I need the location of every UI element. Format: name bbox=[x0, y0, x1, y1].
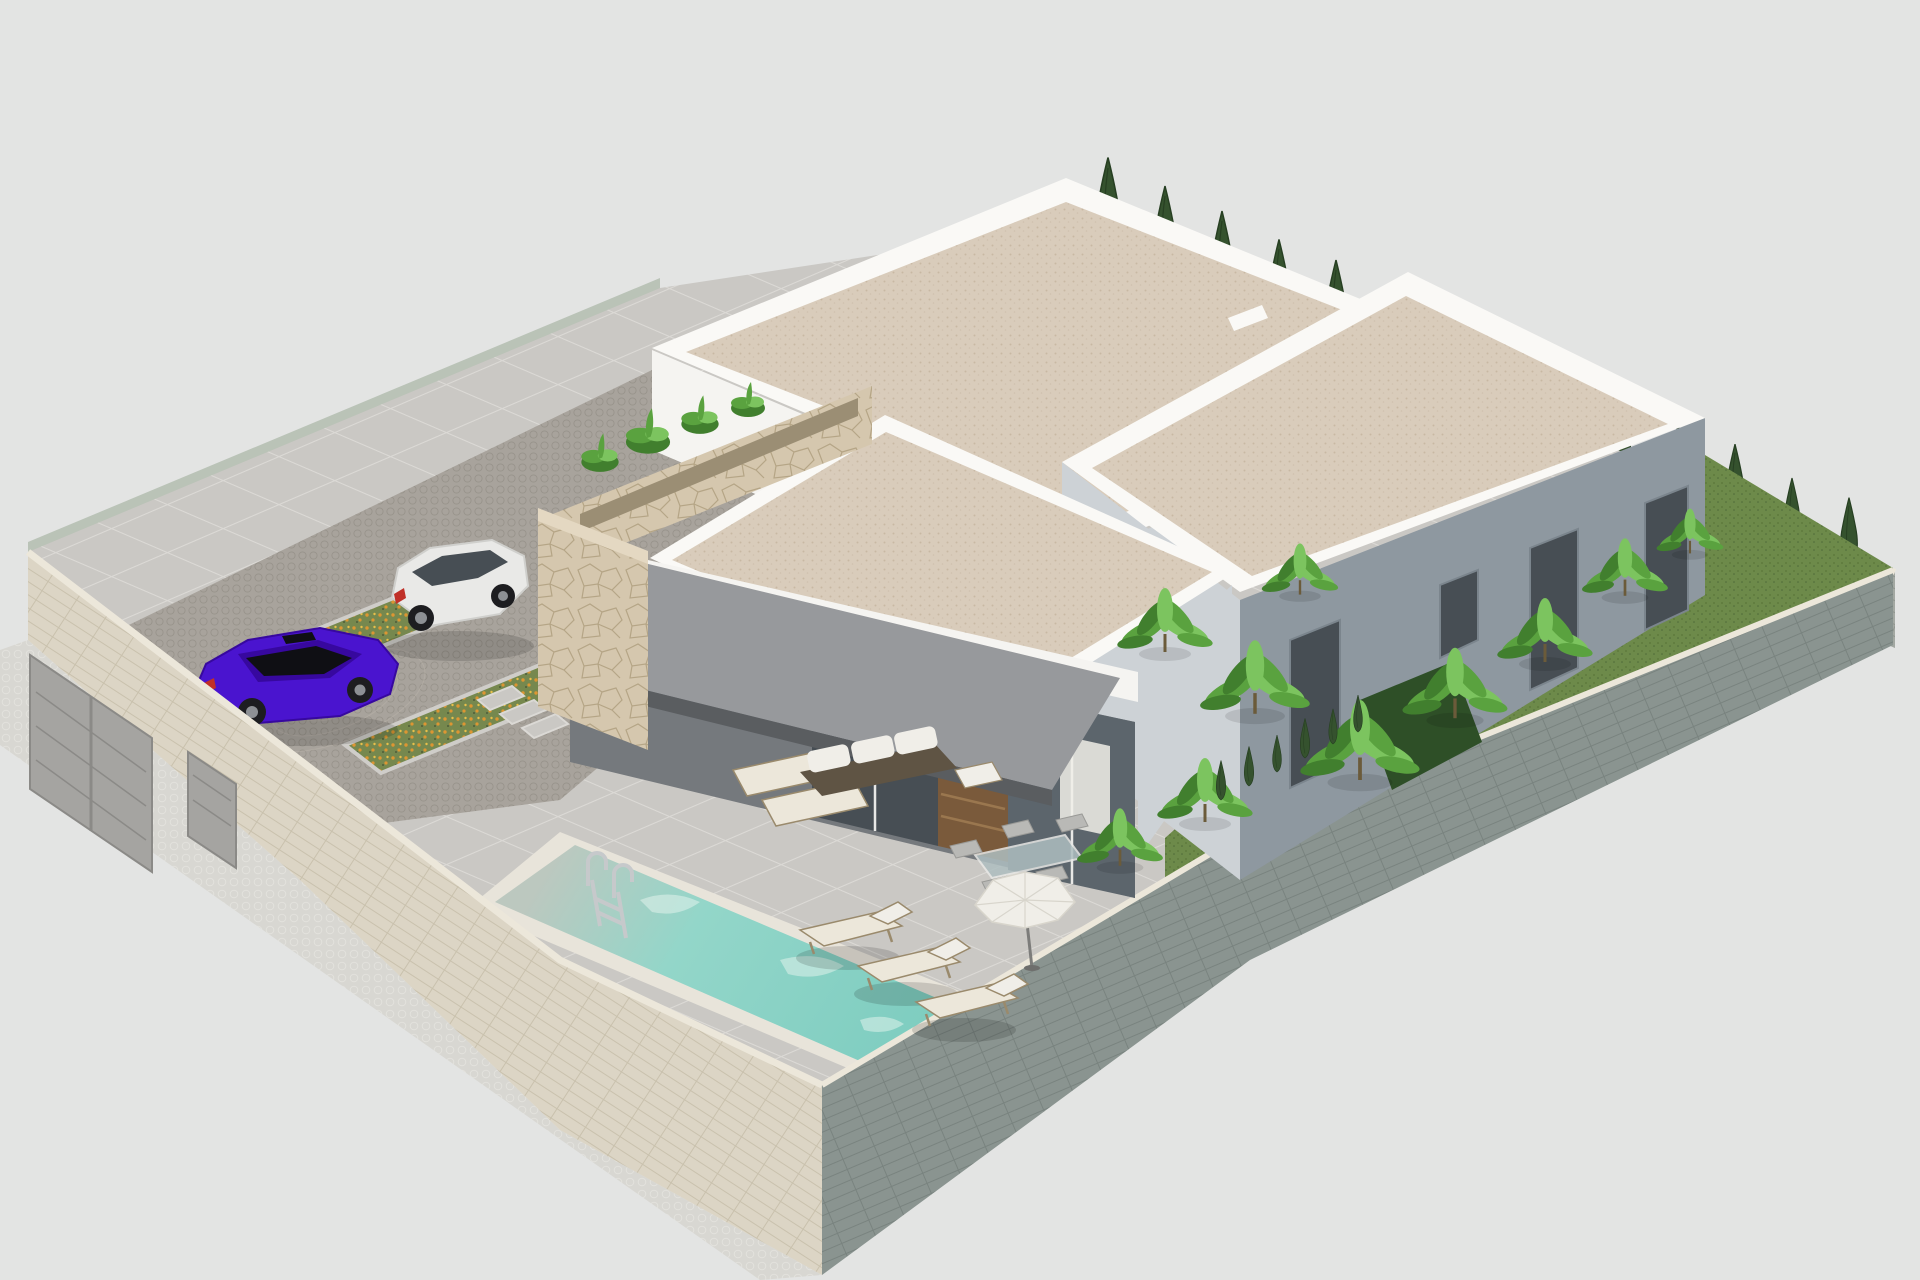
suv-wheel-hub bbox=[498, 591, 508, 601]
suv-wheel-hub bbox=[415, 612, 427, 624]
render-stage bbox=[0, 0, 1920, 1280]
sedan-wheel-hub bbox=[355, 685, 366, 696]
villa-render bbox=[0, 0, 1920, 1280]
car-shadow bbox=[382, 631, 534, 661]
